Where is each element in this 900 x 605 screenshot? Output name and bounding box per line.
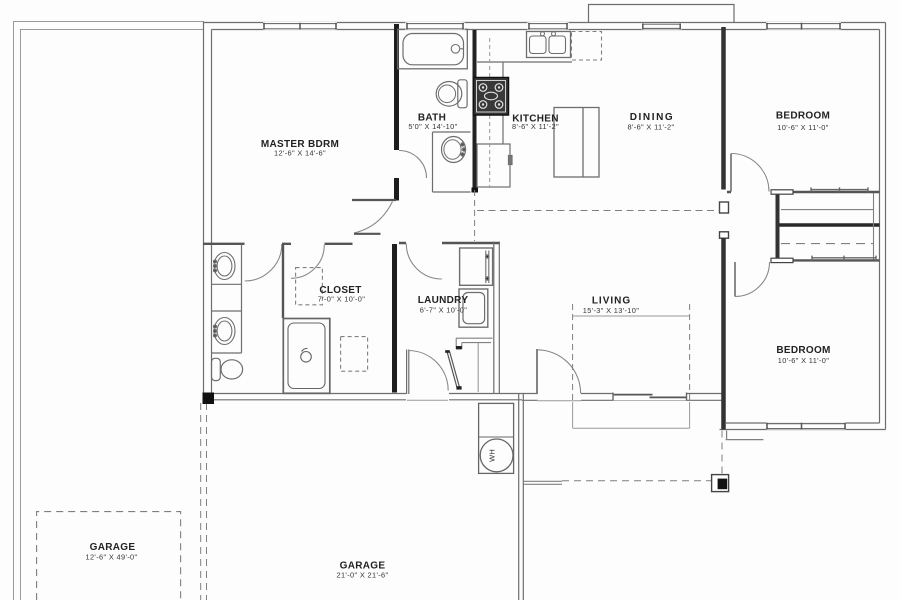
svg-text:6'-7" X 10'-0": 6'-7" X 10'-0" (420, 306, 468, 315)
svg-text:12'-6" X 14'-6": 12'-6" X 14'-6" (274, 149, 326, 158)
svg-text:LAUNDRY: LAUNDRY (418, 295, 469, 306)
svg-text:GARAGE: GARAGE (90, 542, 136, 553)
svg-text:10'-6" X 11'-0": 10'-6" X 11'-0" (778, 356, 829, 365)
svg-text:5'0" X 14'-10": 5'0" X 14'-10" (408, 122, 457, 131)
svg-text:7'-0" X 10'-0": 7'-0" X 10'-0" (318, 295, 366, 304)
svg-text:DINING: DINING (630, 112, 675, 123)
svg-text:15'-3" X 13'-10": 15'-3" X 13'-10" (583, 306, 639, 315)
svg-text:BEDROOM: BEDROOM (776, 111, 830, 122)
svg-text:10'-6" X 11'-0": 10'-6" X 11'-0" (777, 123, 828, 132)
svg-text:WH: WH (488, 449, 497, 462)
svg-text:LIVING: LIVING (592, 296, 631, 307)
svg-text:12'-6" X 49'-0": 12'-6" X 49'-0" (86, 553, 138, 562)
svg-text:21'-0" X 21'-6": 21'-0" X 21'-6" (337, 571, 389, 580)
svg-text:BEDROOM: BEDROOM (776, 345, 830, 356)
svg-text:8'-6" X 11'-2": 8'-6" X 11'-2" (512, 122, 559, 131)
svg-text:8'-6" X 11'-2": 8'-6" X 11'-2" (628, 123, 675, 132)
